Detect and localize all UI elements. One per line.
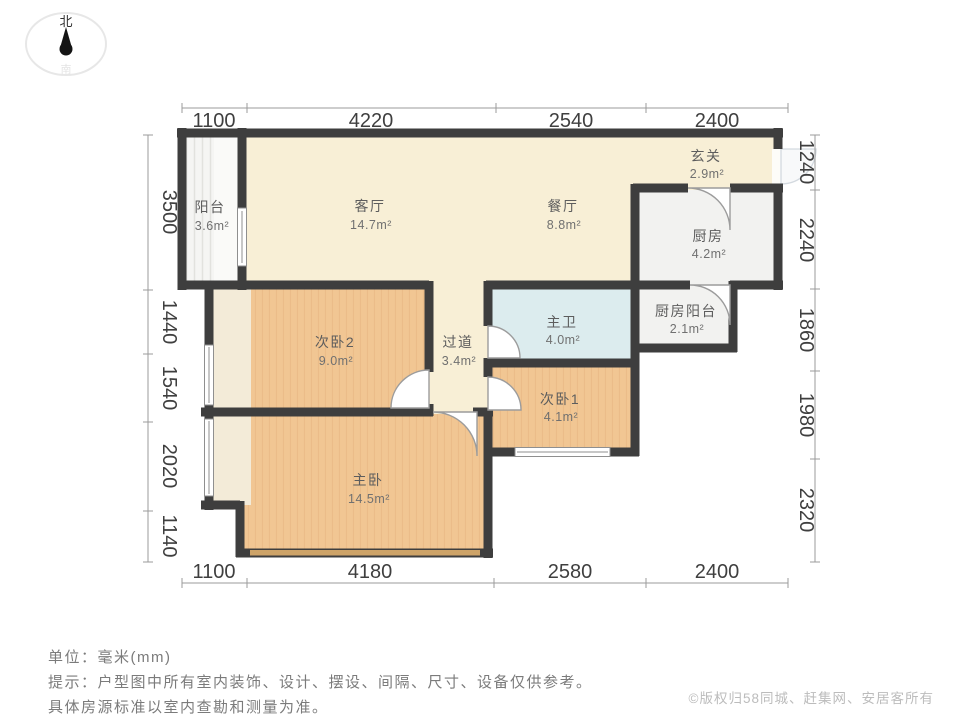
dim-left-3: 2020 [158,444,180,489]
dim-bottom-3: 2400 [695,561,740,583]
kitchen-balcony-label: 厨房阳台 [655,303,717,319]
floorplan-drawing: 阳台 3.6m² 客厅 14.7m² 餐厅 8.8m² 玄关 2.9m² 厨房 … [0,0,960,720]
dim-top-1: 4220 [349,110,394,132]
dim-left-1: 1440 [158,300,180,345]
master-bay-window [250,550,480,556]
dim-right-0: 1240 [795,140,817,185]
tip-note-line1: 提示：户型图中所有室内装饰、设计、摆设、间隔、尺寸、设备仅供参考。 [48,670,593,695]
dim-top-2: 2540 [549,110,594,132]
hallway-label: 过道 [443,334,474,350]
kitchen-balcony-area: 2.1m² [670,322,704,336]
balcony-label: 阳台 [195,199,226,215]
tip-note-line2: 具体房源标准以室内查勘和测量为准。 [48,695,593,720]
bedroom2-label: 次卧2 [315,334,355,350]
compass-south-label: 南 [61,63,72,76]
dim-right-2: 1860 [795,308,817,353]
balcony-area: 3.6m² [195,219,229,233]
dim-left-0: 3500 [158,190,180,235]
dim-right-4: 2320 [795,488,817,533]
dim-left-2: 1540 [158,366,180,411]
kitchen-label: 厨房 [693,228,724,244]
dim-top-0: 1100 [192,110,235,132]
compass-needle-base [60,43,73,56]
master-bath-label: 主卫 [547,314,578,330]
dining-area: 8.8m² [547,218,581,232]
unit-note: 单位：毫米(mm) [48,645,593,670]
master-bedroom-label: 主卧 [353,472,384,488]
master-bedroom-area: 14.5m² [348,492,390,506]
foyer-area: 2.9m² [690,167,724,181]
compass-north-label: 北 [59,14,72,29]
room-master-bedroom [211,414,490,555]
foyer-label: 玄关 [691,148,722,164]
room-hallway [427,285,490,415]
dining-label: 餐厅 [548,198,579,214]
footnotes: 单位：毫米(mm) 提示：户型图中所有室内装饰、设计、摆设、间隔、尺寸、设备仅供… [48,645,593,720]
bedroom1-area: 4.1m² [544,410,578,424]
master-bay-strip [211,414,251,505]
dim-bottom-1: 4180 [348,561,393,583]
floorplan-page: 阳台 3.6m² 客厅 14.7m² 餐厅 8.8m² 玄关 2.9m² 厨房 … [0,0,960,720]
copyright-notice: ©版权归58同城、赶集网、安居客所有 [689,687,934,707]
dim-right-1: 2240 [795,218,817,263]
hallway-area: 3.4m² [442,354,476,368]
kitchen-area: 4.2m² [692,247,726,261]
dim-top-3: 2400 [695,110,740,132]
bedroom2-area: 9.0m² [319,354,353,368]
compass: 北 南 [26,13,106,76]
dim-bottom-2: 2580 [548,561,593,583]
bedroom2-bay-strip [211,289,251,412]
living-area: 14.7m² [350,218,392,232]
dim-left-4: 1140 [158,514,180,557]
living-label: 客厅 [355,198,386,214]
dim-right-3: 1980 [795,393,817,438]
dim-line-left [143,135,153,562]
bedroom1-label: 次卧1 [540,391,580,407]
dim-bottom-0: 1100 [192,561,235,583]
master-bath-area: 4.0m² [546,333,580,347]
